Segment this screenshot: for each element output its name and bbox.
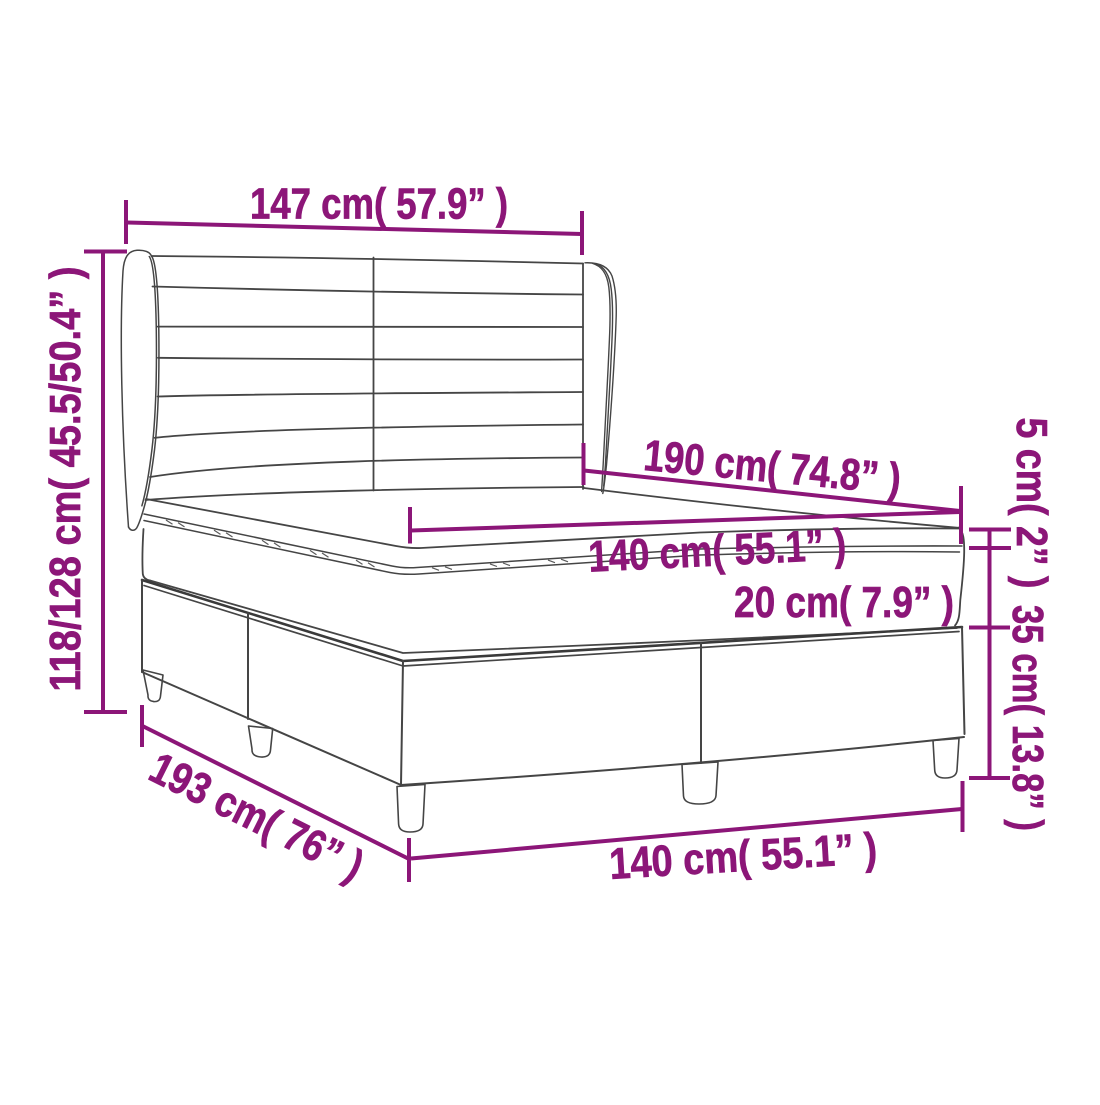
svg-text:147 cm( 57.9” ): 147 cm( 57.9” ) — [250, 180, 508, 229]
svg-text:35 cm( 13.8” ): 35 cm( 13.8” ) — [1003, 605, 1052, 831]
svg-text:118/128 cm( 45.5/50.4” ): 118/128 cm( 45.5/50.4” ) — [41, 267, 90, 692]
svg-text:20 cm( 7.9” ): 20 cm( 7.9” ) — [734, 578, 954, 627]
svg-text:5 cm( 2” ): 5 cm( 2” ) — [1007, 418, 1056, 589]
